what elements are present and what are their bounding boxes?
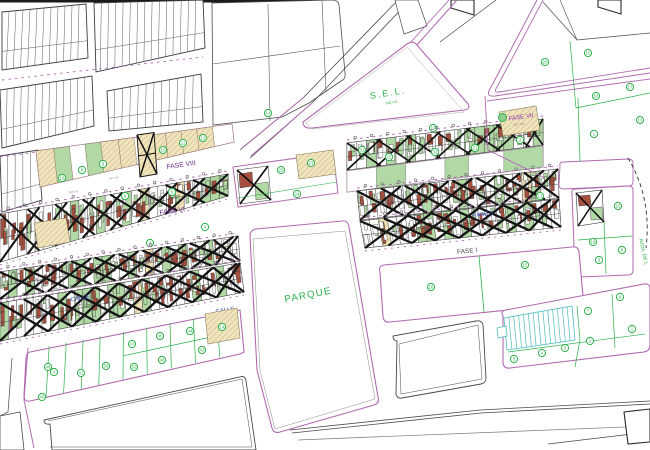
svg-text:16: 16 (429, 285, 434, 290)
svg-text:22: 22 (387, 155, 392, 160)
svg-text:32: 32 (433, 150, 438, 155)
svg-text:41: 41 (79, 371, 84, 376)
svg-text:21: 21 (473, 146, 478, 151)
svg-text:10: 10 (161, 148, 166, 153)
svg-text:11: 11 (181, 141, 186, 146)
svg-text:31: 31 (360, 148, 365, 153)
svg-text:15: 15 (616, 204, 621, 209)
svg-text:58: 58 (104, 364, 109, 369)
svg-text:16: 16 (60, 176, 65, 181)
svg-text:14: 14 (220, 325, 225, 330)
svg-text:18: 18 (594, 94, 599, 99)
svg-text:24: 24 (295, 192, 300, 197)
svg-text:25: 25 (279, 168, 284, 173)
svg-text:48: 48 (46, 365, 51, 370)
svg-text:18: 18 (591, 240, 596, 245)
svg-text:45: 45 (158, 334, 163, 339)
svg-text:20: 20 (543, 60, 548, 65)
svg-text:12: 12 (538, 194, 543, 199)
svg-text:15: 15 (523, 263, 528, 268)
svg-text:13: 13 (638, 118, 643, 123)
svg-text:12: 12 (201, 136, 206, 141)
svg-text:10: 10 (586, 51, 591, 56)
svg-text:46: 46 (160, 358, 165, 363)
svg-text:23: 23 (309, 161, 314, 166)
svg-text:40: 40 (40, 395, 45, 400)
svg-text:47: 47 (130, 342, 135, 347)
svg-text:17: 17 (628, 85, 633, 90)
svg-text:44: 44 (188, 329, 193, 334)
svg-text:50: 50 (132, 365, 137, 370)
svg-text:43: 43 (200, 348, 205, 353)
svg-text:14: 14 (266, 111, 271, 116)
